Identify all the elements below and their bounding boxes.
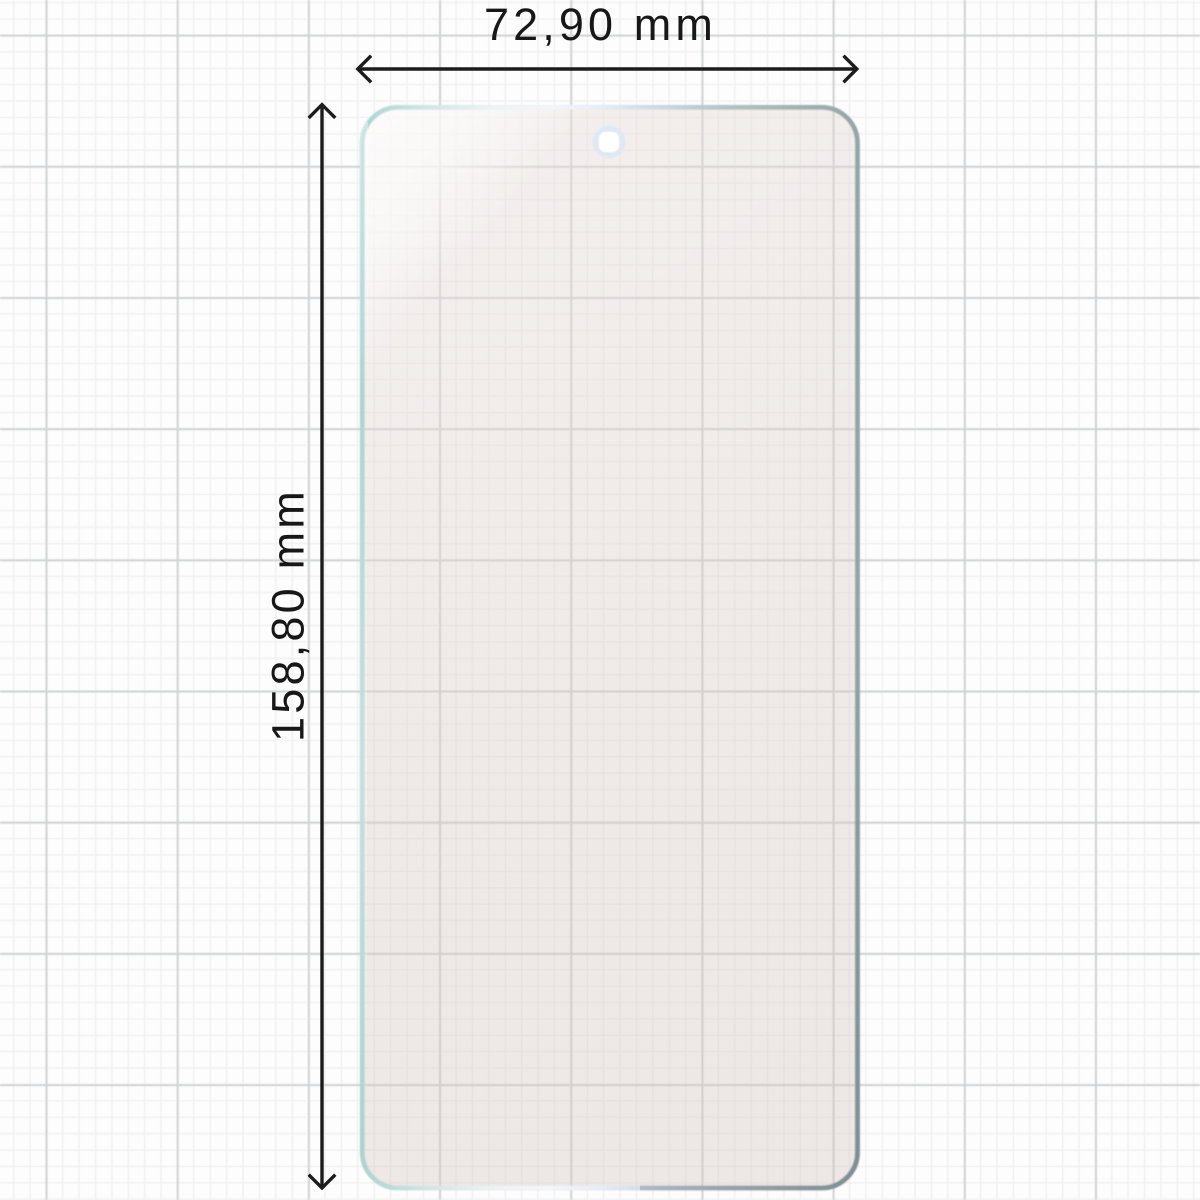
svg-text:72,90 mm: 72,90 mm (484, 0, 717, 50)
svg-text:158,80 mm: 158,80 mm (263, 488, 314, 742)
